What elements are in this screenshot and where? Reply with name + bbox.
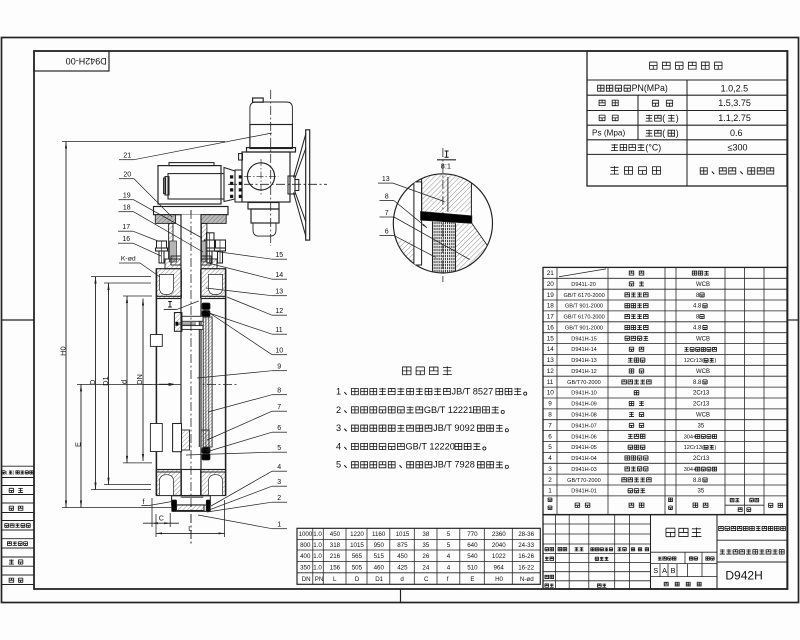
svg-text:GB/T70-2000: GB/T70-2000 — [567, 380, 601, 386]
svg-text:.: . — [642, 547, 643, 552]
svg-text:JB/T 7928: JB/T 7928 — [433, 460, 475, 470]
svg-text:16-26: 16-26 — [518, 553, 534, 560]
svg-text:1000: 1000 — [299, 531, 313, 538]
svg-text:1.5,3.75: 1.5,3.75 — [718, 98, 751, 108]
svg-text:D941H-15: D941H-15 — [571, 336, 597, 342]
svg-text:C: C — [424, 576, 429, 583]
svg-text:1015: 1015 — [396, 531, 410, 538]
svg-text:5: 5 — [277, 445, 281, 452]
svg-text:1.0,2.5: 1.0,2.5 — [721, 84, 749, 94]
svg-text:2Cr13: 2Cr13 — [693, 456, 710, 462]
svg-text:L: L — [188, 526, 192, 533]
svg-text:450: 450 — [330, 531, 341, 538]
svg-text:18: 18 — [123, 205, 131, 212]
svg-text:8: 8 — [277, 388, 281, 395]
svg-text:21: 21 — [547, 270, 555, 277]
svg-text:D941H-12: D941H-12 — [571, 369, 597, 375]
svg-text:D941L-20: D941L-20 — [571, 282, 596, 288]
svg-text:≤300: ≤300 — [728, 142, 748, 152]
svg-text:12Cr13(: 12Cr13( — [684, 358, 704, 364]
svg-text:D941H-04: D941H-04 — [571, 456, 597, 462]
svg-text:2: 2 — [336, 405, 341, 415]
svg-text:304+: 304+ — [684, 467, 697, 473]
svg-text:PN(MPa): PN(MPa) — [632, 83, 668, 93]
svg-text:S: S — [653, 566, 658, 575]
svg-text:1: 1 — [548, 488, 552, 495]
svg-text:7: 7 — [548, 422, 552, 429]
svg-text:GB/T70-2000: GB/T70-2000 — [567, 478, 601, 484]
svg-text:565: 565 — [352, 553, 363, 560]
svg-text:35: 35 — [422, 542, 429, 549]
svg-text:1.0: 1.0 — [313, 564, 322, 571]
svg-text:12: 12 — [275, 308, 283, 315]
svg-text:964: 964 — [494, 564, 505, 571]
svg-text:DN: DN — [135, 374, 144, 385]
svg-text:1: 1 — [277, 522, 281, 529]
svg-text:15: 15 — [275, 252, 283, 259]
svg-text:K-ød: K-ød — [121, 256, 136, 263]
svg-text:D941H-08: D941H-08 — [571, 413, 597, 419]
svg-text:350: 350 — [300, 564, 311, 571]
svg-text:WCB: WCB — [696, 413, 710, 419]
svg-text:540: 540 — [467, 553, 478, 560]
svg-text:8.8: 8.8 — [693, 478, 702, 484]
svg-text:GB/T 12221: GB/T 12221 — [424, 405, 473, 415]
svg-text:505: 505 — [352, 564, 363, 571]
svg-text:2Cr13: 2Cr13 — [693, 402, 710, 408]
svg-text:4: 4 — [336, 441, 341, 451]
svg-text:12: 12 — [547, 368, 555, 375]
svg-text:12Cr13(: 12Cr13( — [684, 445, 704, 451]
svg-text:4.8: 4.8 — [693, 304, 702, 310]
svg-text:Ps (Mpa): Ps (Mpa) — [592, 129, 625, 138]
svg-text:H0: H0 — [59, 346, 68, 356]
svg-text:1022: 1022 — [492, 553, 506, 560]
svg-text:24: 24 — [422, 564, 429, 571]
svg-text:.: . — [635, 547, 636, 552]
svg-text:N-ød: N-ød — [520, 576, 534, 583]
svg-text:B: B — [671, 566, 676, 575]
svg-text:2360: 2360 — [492, 531, 506, 538]
svg-text:6: 6 — [277, 425, 281, 432]
svg-text:): ) — [715, 445, 717, 451]
svg-text:640: 640 — [467, 542, 478, 549]
svg-text:8.8: 8.8 — [693, 380, 702, 386]
svg-text:D941H-14: D941H-14 — [571, 347, 597, 353]
svg-text:16: 16 — [547, 324, 555, 331]
svg-text:875: 875 — [397, 542, 408, 549]
svg-text:(: ( — [662, 128, 665, 138]
svg-text:1.0: 1.0 — [313, 531, 322, 538]
svg-text:17: 17 — [547, 314, 555, 321]
svg-text:19: 19 — [547, 292, 555, 299]
svg-text:GB/T 901-2000: GB/T 901-2000 — [565, 325, 603, 331]
svg-text:156: 156 — [330, 564, 341, 571]
svg-text:8: 8 — [548, 412, 552, 419]
svg-text:D941H-10: D941H-10 — [571, 391, 597, 397]
svg-text:304+: 304+ — [684, 434, 697, 440]
svg-text:7: 7 — [385, 210, 389, 217]
svg-text:H0: H0 — [495, 576, 503, 583]
svg-text:1.0: 1.0 — [313, 542, 322, 549]
svg-text:4: 4 — [548, 455, 552, 462]
svg-text:8: 8 — [385, 193, 389, 200]
svg-text:JB/T 9092: JB/T 9092 — [433, 423, 475, 433]
svg-text:d: d — [120, 380, 129, 384]
svg-text:24-33: 24-33 — [518, 542, 534, 549]
svg-text:9: 9 — [277, 364, 281, 371]
svg-text:8:1: 8:1 — [441, 162, 451, 171]
svg-text:(: ( — [662, 113, 665, 123]
svg-text:400: 400 — [300, 553, 311, 560]
svg-text:3: 3 — [336, 423, 341, 433]
svg-text:216: 216 — [330, 553, 341, 560]
svg-text:f: f — [447, 576, 449, 583]
svg-text:): ) — [676, 113, 679, 123]
svg-text:L: L — [333, 576, 337, 583]
svg-text:5: 5 — [447, 531, 451, 538]
svg-text:20: 20 — [547, 281, 555, 288]
svg-text:WCB: WCB — [696, 336, 710, 342]
svg-text:6: 6 — [385, 228, 389, 235]
svg-text:D941H-09: D941H-09 — [571, 402, 597, 408]
svg-text:20: 20 — [123, 172, 131, 179]
svg-text:15: 15 — [547, 335, 555, 342]
svg-text:318: 318 — [330, 542, 341, 549]
svg-text:): ) — [715, 358, 717, 364]
svg-text:800: 800 — [300, 542, 311, 549]
svg-text:D941H-07: D941H-07 — [571, 423, 597, 429]
svg-text:D941H-06: D941H-06 — [571, 434, 597, 440]
svg-text:GB/T 901-2000: GB/T 901-2000 — [565, 304, 603, 310]
svg-text:38: 38 — [422, 531, 429, 538]
svg-text:425: 425 — [397, 564, 408, 571]
svg-text:1.0: 1.0 — [313, 553, 322, 560]
svg-text:11: 11 — [547, 379, 554, 386]
svg-text:1015: 1015 — [350, 542, 364, 549]
svg-text:D942H-00: D942H-00 — [66, 56, 107, 66]
svg-text:DN: DN — [302, 576, 311, 583]
svg-text:2: 2 — [277, 495, 281, 502]
svg-text:GB/T 6170-2000: GB/T 6170-2000 — [564, 293, 605, 299]
svg-text:f: f — [143, 499, 145, 506]
svg-text:D941H-05: D941H-05 — [571, 445, 597, 451]
svg-text:D941H-03: D941H-03 — [571, 467, 597, 473]
svg-text:WCB: WCB — [696, 369, 710, 375]
svg-text:d: d — [400, 576, 404, 583]
svg-text:17: 17 — [122, 224, 130, 231]
svg-text:2040: 2040 — [492, 542, 506, 549]
svg-text:A: A — [662, 566, 667, 575]
svg-text:1220: 1220 — [350, 531, 364, 538]
svg-text:16: 16 — [122, 236, 130, 243]
svg-text:D1: D1 — [375, 576, 383, 583]
svg-text:460: 460 — [374, 564, 385, 571]
svg-text:770: 770 — [467, 531, 478, 538]
svg-text:7: 7 — [277, 404, 281, 411]
svg-text:JB/T 8527: JB/T 8527 — [452, 387, 494, 397]
svg-text:5: 5 — [447, 542, 451, 549]
svg-text:13: 13 — [382, 176, 390, 183]
svg-text:D941H-01: D941H-01 — [571, 489, 597, 495]
svg-text:35: 35 — [698, 489, 705, 495]
svg-text:GB/T 12220: GB/T 12220 — [406, 441, 455, 451]
svg-text:D941H-13: D941H-13 — [571, 358, 597, 364]
svg-text:450: 450 — [397, 553, 408, 560]
svg-text:4.8: 4.8 — [693, 325, 702, 331]
svg-text:16-22: 16-22 — [518, 564, 534, 571]
svg-text:4: 4 — [447, 564, 451, 571]
svg-text:PN: PN — [315, 576, 324, 583]
svg-text:13: 13 — [547, 357, 555, 364]
svg-text:2: 2 — [548, 477, 552, 484]
svg-text:18: 18 — [547, 303, 555, 310]
svg-text:): ) — [676, 128, 679, 138]
svg-text:2Cr13: 2Cr13 — [693, 391, 710, 397]
svg-text:515: 515 — [374, 553, 385, 560]
svg-text:14: 14 — [547, 346, 555, 353]
svg-text:10: 10 — [275, 348, 283, 355]
svg-text:1160: 1160 — [372, 531, 386, 538]
svg-text:35: 35 — [698, 423, 705, 429]
svg-text:6: 6 — [548, 433, 552, 440]
svg-text:1.1,2.75: 1.1,2.75 — [718, 113, 751, 123]
svg-text:E: E — [74, 442, 83, 447]
svg-text:21: 21 — [123, 153, 131, 160]
svg-text:5: 5 — [336, 460, 341, 470]
svg-text:E: E — [470, 576, 474, 583]
svg-text:950: 950 — [374, 542, 385, 549]
svg-text:26: 26 — [422, 553, 429, 560]
svg-text:GB/T 6170-2000: GB/T 6170-2000 — [564, 315, 605, 321]
svg-text:11: 11 — [275, 327, 282, 334]
svg-text:4: 4 — [447, 553, 451, 560]
svg-text:9: 9 — [548, 401, 552, 408]
svg-text:D942H: D942H — [725, 569, 762, 583]
svg-text:WCB: WCB — [696, 282, 710, 288]
svg-text:4: 4 — [277, 464, 281, 471]
svg-text:C: C — [159, 516, 164, 523]
svg-text:19: 19 — [123, 193, 131, 200]
svg-text:D: D — [355, 576, 360, 583]
svg-text:0.6: 0.6 — [730, 128, 743, 138]
svg-text:13: 13 — [275, 289, 283, 296]
svg-text:28-36: 28-36 — [518, 531, 534, 538]
svg-text:3: 3 — [548, 466, 552, 473]
svg-text:1: 1 — [336, 387, 341, 397]
svg-text:14: 14 — [275, 272, 283, 279]
svg-text:5: 5 — [548, 444, 552, 451]
svg-text:510: 510 — [467, 564, 478, 571]
svg-text:10: 10 — [547, 390, 555, 397]
svg-text:(°C): (°C) — [645, 142, 661, 152]
svg-text:3: 3 — [277, 479, 281, 486]
